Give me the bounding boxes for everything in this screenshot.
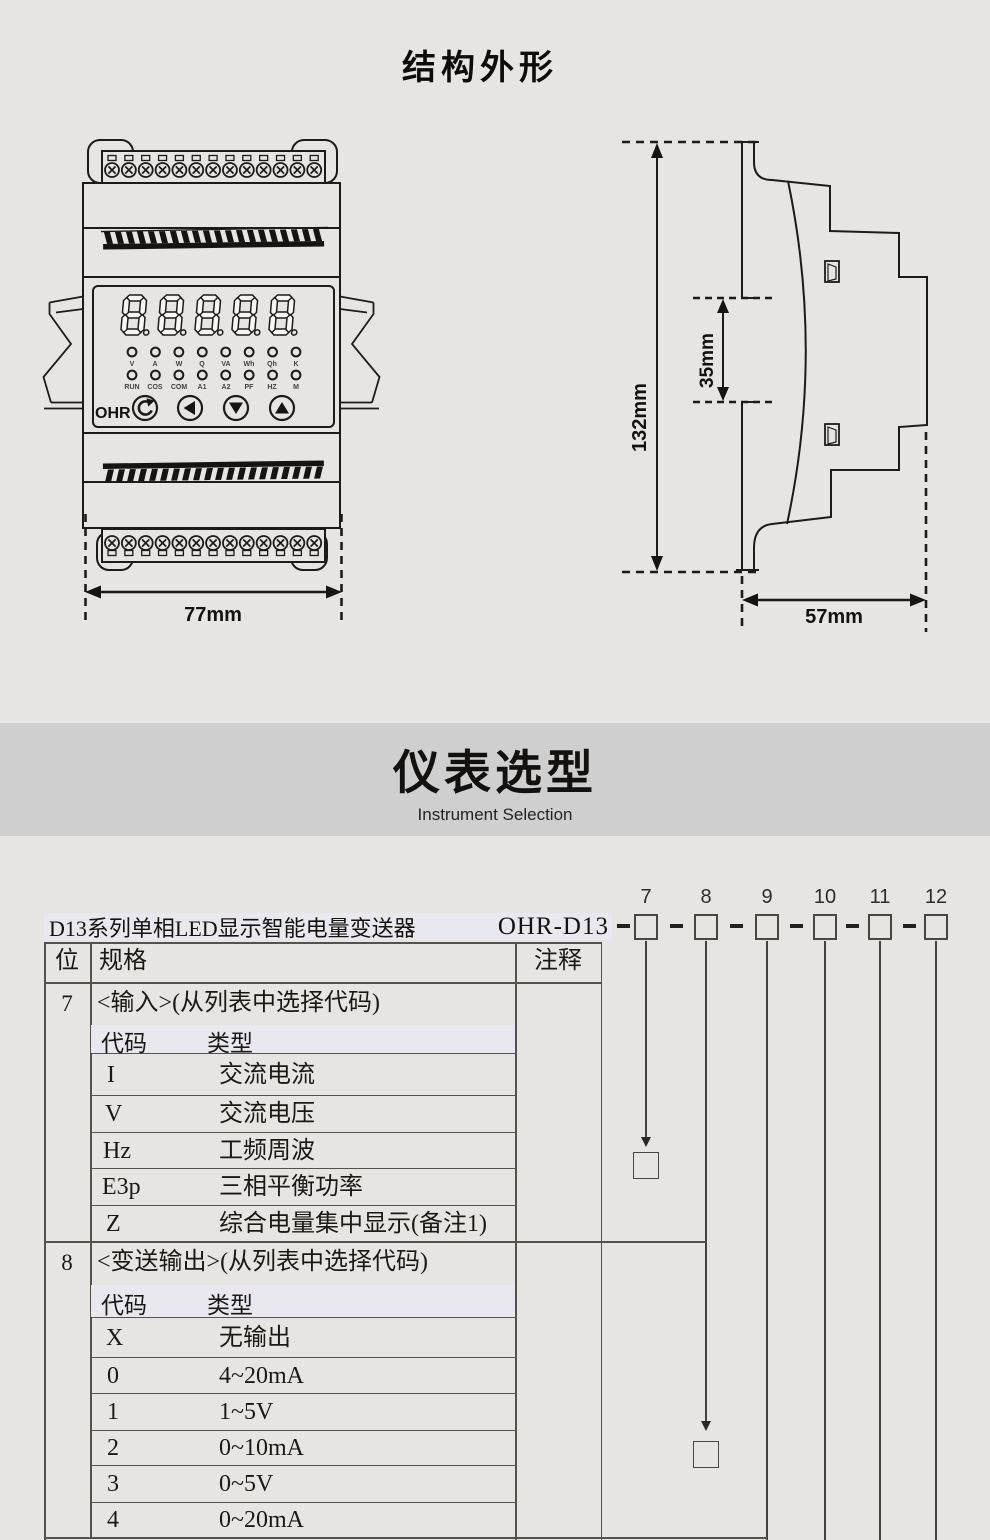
din-rail-left xyxy=(44,297,84,409)
header-note: 注释 xyxy=(515,948,601,976)
table-border xyxy=(44,942,602,944)
leader-line-9 xyxy=(766,941,768,1540)
digit-position-11: 11 xyxy=(863,887,897,907)
code-cell: Hz xyxy=(103,1138,131,1166)
front-view: V A W Q VA Wh Qh K RUN COS COM A1 A2 PF xyxy=(44,140,380,626)
code-cell: 1 xyxy=(107,1399,119,1427)
arrow-down-icon xyxy=(641,1137,651,1147)
section-pos: 7 xyxy=(44,991,90,1017)
row-line xyxy=(91,1168,515,1169)
code-cell: I xyxy=(107,1062,115,1090)
leader-line-7 xyxy=(645,941,647,1138)
dash xyxy=(730,924,743,928)
row-line xyxy=(91,1132,515,1133)
col-type: 类型 xyxy=(207,1031,253,1057)
code-cell: Z xyxy=(106,1211,121,1239)
section-pos: 8 xyxy=(44,1250,90,1276)
model-prefix: OHR-D13 xyxy=(498,913,609,941)
led-label: Qh xyxy=(267,361,277,368)
subheader-band xyxy=(91,1285,515,1317)
type-cell: 4~20mA xyxy=(219,1363,304,1391)
code-cell: V xyxy=(105,1101,122,1129)
type-cell: 0~10mA xyxy=(219,1435,304,1463)
led-label: Wh xyxy=(244,361,255,368)
dim-57mm-label: 57mm xyxy=(805,606,863,628)
din-rail-right xyxy=(340,297,380,409)
digit-position-7: 7 xyxy=(629,887,663,907)
code-cell: 4 xyxy=(107,1507,119,1535)
cycle-button-icon xyxy=(133,396,157,420)
code-cell: 3 xyxy=(107,1471,119,1499)
header-spec: 规格 xyxy=(99,948,147,976)
code-box-8 xyxy=(694,914,718,940)
led-labels-row1: V A W Q VA Wh Qh K xyxy=(130,361,299,368)
row-line xyxy=(91,1205,515,1206)
row-line xyxy=(91,1430,515,1431)
led-label: VA xyxy=(221,361,230,368)
seven-segment-display xyxy=(120,295,300,335)
dash xyxy=(846,924,859,928)
section-title-row: <变送输出>(从列表中选择代码) xyxy=(97,1249,428,1277)
led-label: A2 xyxy=(222,384,231,391)
digit-position-9: 9 xyxy=(750,887,784,907)
dash xyxy=(790,924,803,928)
subheader-band xyxy=(91,1025,515,1053)
led-label: PF xyxy=(245,384,255,391)
arrow-down-icon xyxy=(701,1421,711,1431)
type-cell: 工频周波 xyxy=(219,1138,315,1166)
leader-line-12 xyxy=(935,941,937,1540)
led-label: A1 xyxy=(198,384,207,391)
digit-position-12: 12 xyxy=(919,887,953,907)
table-border xyxy=(44,982,602,984)
leader-line-11 xyxy=(879,941,881,1540)
target-box-7 xyxy=(633,1152,659,1179)
type-cell: 0~20mA xyxy=(219,1507,304,1535)
datasheet-page: 结构外形 xyxy=(0,0,990,1540)
dash xyxy=(617,924,630,928)
table-border xyxy=(44,1537,767,1539)
row-line xyxy=(91,1053,515,1054)
code-box-9 xyxy=(755,914,779,940)
code-box-12 xyxy=(924,914,948,940)
header-pos: 位 xyxy=(44,948,90,976)
dim-77mm-label: 77mm xyxy=(184,604,242,626)
col-code: 代码 xyxy=(101,1031,147,1057)
col-type: 类型 xyxy=(207,1293,253,1319)
side-profile xyxy=(736,142,927,570)
vent-strip-top xyxy=(101,227,328,249)
side-view: 132mm 35mm xyxy=(622,142,927,632)
section-banner: 仪表选型 Instrument Selection xyxy=(0,723,990,836)
type-cell: 无输出 xyxy=(219,1325,291,1353)
row-line xyxy=(91,1465,515,1466)
code-cell: E3p xyxy=(102,1174,141,1202)
led-label: RUN xyxy=(124,384,139,391)
type-cell: 交流电压 xyxy=(219,1101,315,1129)
vent-strip-bottom xyxy=(103,460,324,481)
code-cell: X xyxy=(106,1325,123,1353)
leader-line-10 xyxy=(824,941,826,1540)
row-line xyxy=(91,1357,515,1358)
row-line xyxy=(91,1393,515,1394)
row-line xyxy=(91,1317,515,1318)
led-label: COS xyxy=(147,384,163,391)
col-code: 代码 xyxy=(101,1293,147,1319)
led-label: A xyxy=(152,361,157,368)
led-label: M xyxy=(293,384,299,391)
type-cell: 综合电量集中显示(备注1) xyxy=(219,1211,487,1239)
code-box-7 xyxy=(634,914,658,940)
section-subtitle: Instrument Selection xyxy=(418,805,573,825)
type-cell: 1~5V xyxy=(219,1399,273,1427)
row-line xyxy=(91,1095,515,1096)
type-cell: 0~5V xyxy=(219,1471,273,1499)
digit-position-8: 8 xyxy=(689,887,723,907)
brand-logo: OHR xyxy=(95,405,131,422)
panel-buttons xyxy=(133,396,294,420)
led-label: Q xyxy=(199,361,205,368)
clip-window-top xyxy=(825,261,839,282)
leader-line-8 xyxy=(705,941,707,1422)
dash xyxy=(903,924,916,928)
dim-35mm-label: 35mm xyxy=(697,333,718,388)
led-label: V xyxy=(130,361,135,368)
code-cell: 2 xyxy=(107,1435,119,1463)
row-line xyxy=(91,1502,515,1503)
dim-132mm-label: 132mm xyxy=(629,383,651,452)
code-cell: 0 xyxy=(107,1363,119,1391)
clip-window-bottom xyxy=(825,424,839,445)
section-title: 仪表选型 xyxy=(393,734,597,803)
target-box-8 xyxy=(693,1441,719,1468)
table-border xyxy=(44,1241,706,1243)
type-cell: 交流电流 xyxy=(219,1062,315,1090)
led-label: W xyxy=(176,361,183,368)
led-label: COM xyxy=(171,384,188,391)
led-labels-row2: RUN COS COM A1 A2 PF HZ M xyxy=(124,384,299,391)
led-label: HZ xyxy=(267,384,277,391)
dash xyxy=(670,924,683,928)
code-box-10 xyxy=(813,914,837,940)
led-label: K xyxy=(293,361,298,368)
product-title-band: D13系列单相LED显示智能电量变送器 OHR-D13 xyxy=(44,913,612,940)
dimension-drawings: V A W Q VA Wh Qh K RUN COS COM A1 A2 PF xyxy=(0,0,990,700)
section-title-row: <输入>(从列表中选择代码) xyxy=(97,990,380,1018)
product-label: D13系列单相LED显示智能电量变送器 xyxy=(49,911,416,943)
digit-position-10: 10 xyxy=(808,887,842,907)
code-box-11 xyxy=(868,914,892,940)
type-cell: 三相平衡功率 xyxy=(219,1174,363,1202)
